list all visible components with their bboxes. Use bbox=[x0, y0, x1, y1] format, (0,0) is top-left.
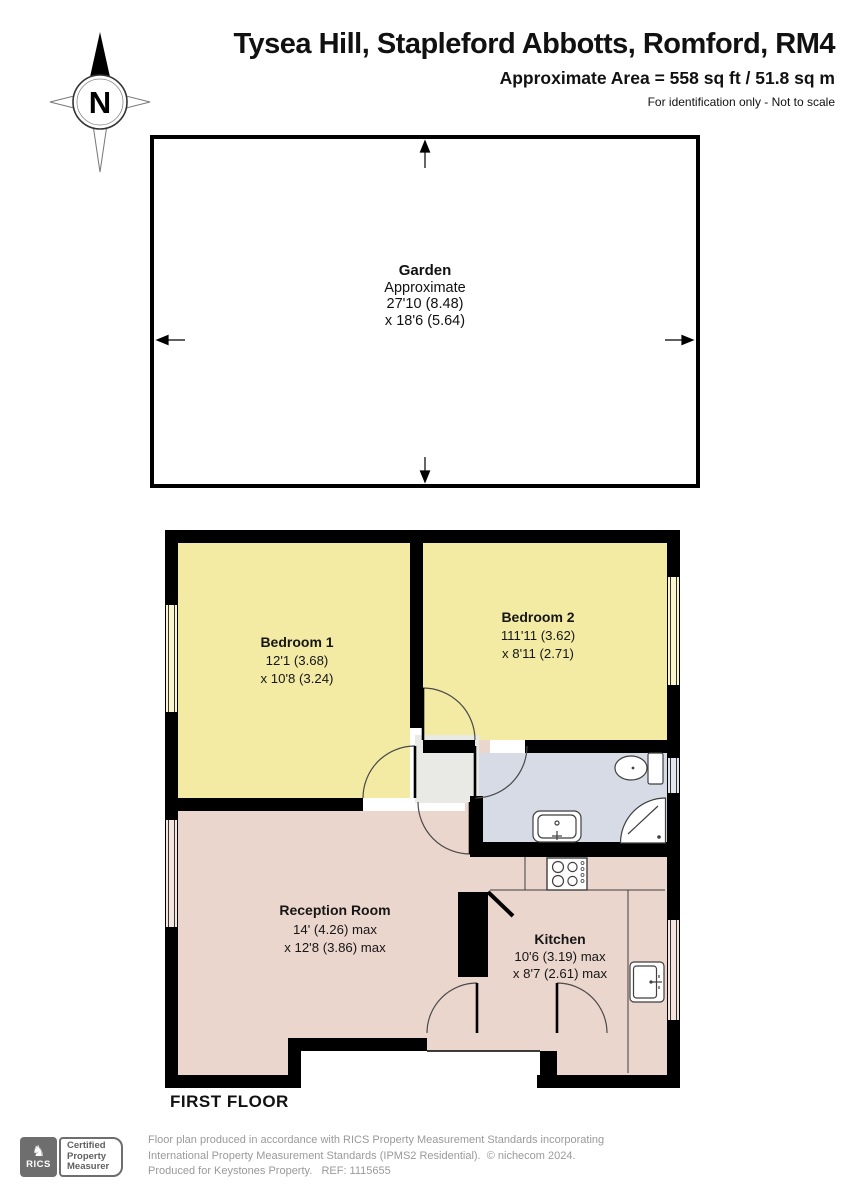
wall-bottom-step bbox=[288, 1038, 301, 1088]
kitchen-dim1: 10'6 (3.19) max bbox=[514, 949, 606, 964]
certified-property-measurer-badge: Certified Property Measurer bbox=[59, 1137, 123, 1177]
wall-reception-kitchen bbox=[458, 892, 488, 977]
garden-name: Garden bbox=[154, 263, 696, 280]
reception-dim1: 14' (4.26) max bbox=[293, 922, 377, 937]
garden-approx: Approximate bbox=[154, 280, 696, 297]
bedroom2-dim1: 111'11 (3.62) bbox=[501, 628, 575, 643]
footer-note-line3: Produced for Keystones Property. REF: 11… bbox=[148, 1164, 604, 1180]
wall-hall-bathroom bbox=[470, 796, 483, 842]
bedroom1-window bbox=[166, 605, 177, 712]
kitchen-window bbox=[668, 920, 679, 1020]
bathroom-sink bbox=[533, 811, 581, 842]
exterior-notch bbox=[301, 1051, 540, 1088]
compass-n-label: N bbox=[89, 85, 111, 120]
reception-dim2: x 12'8 (3.86) max bbox=[284, 940, 386, 955]
first-floor-plan: Bedroom 1 12'1 (3.68) x 10'8 (3.24) Bedr… bbox=[165, 530, 680, 1088]
compass-north-icon: N bbox=[42, 24, 158, 174]
garden-plot: Garden Approximate 27'10 (8.48) x 18'6 (… bbox=[150, 135, 700, 488]
rics-wordmark: RICS bbox=[26, 1159, 51, 1170]
wall-bed2-bathroom bbox=[525, 740, 667, 753]
garden-label: Garden Approximate 27'10 (8.48) x 18'6 (… bbox=[154, 263, 696, 329]
bedroom1-dim1: 12'1 (3.68) bbox=[266, 653, 329, 668]
bedroom2-dim2: x 8'11 (2.71) bbox=[502, 646, 574, 661]
floor-label: FIRST FLOOR bbox=[170, 1092, 289, 1112]
bedroom1-dim2: x 10'8 (3.24) bbox=[261, 671, 334, 686]
bathroom-window bbox=[668, 758, 679, 793]
garden-dim2: x 18'6 (5.64) bbox=[154, 313, 696, 330]
reception-name: Reception Room bbox=[279, 902, 390, 918]
wall-bed1-reception bbox=[178, 798, 363, 811]
floorplan-page: { "header": { "title": "Tysea Hill, Stap… bbox=[0, 0, 849, 1200]
wall-bottom-kitchen bbox=[537, 1075, 680, 1088]
approximate-area: Approximate Area = 558 sq ft / 51.8 sq m bbox=[500, 68, 835, 89]
bedroom2-window bbox=[668, 577, 679, 685]
page-title: Tysea Hill, Stapleford Abbotts, Romford,… bbox=[233, 28, 835, 61]
scale-disclaimer: For identification only - Not to scale bbox=[648, 95, 835, 109]
badge-line3: Measurer bbox=[67, 1162, 121, 1173]
kitchen-sink bbox=[630, 962, 664, 1002]
kitchen-dim2: x 8'7 (2.61) max bbox=[513, 966, 608, 981]
bedroom1-name: Bedroom 1 bbox=[260, 634, 333, 650]
rics-logo: ♞ RICS bbox=[20, 1137, 57, 1177]
wall-bathroom-kitchen bbox=[470, 842, 680, 857]
rics-lion-icon: ♞ bbox=[32, 1145, 45, 1159]
reception-window bbox=[166, 820, 177, 927]
footer-note-line1: Floor plan produced in accordance with R… bbox=[148, 1133, 604, 1149]
wall-top bbox=[165, 530, 680, 543]
wall-kitchen-corner bbox=[540, 1051, 557, 1088]
kitchen-name: Kitchen bbox=[534, 931, 585, 947]
hob bbox=[547, 858, 587, 890]
footer-disclaimer: Floor plan produced in accordance with R… bbox=[148, 1133, 604, 1180]
garden-dim1: 27'10 (8.48) bbox=[154, 296, 696, 313]
footer-note-line2: International Property Measurement Stand… bbox=[148, 1149, 604, 1165]
wall-bed2-hall bbox=[423, 740, 475, 753]
wall-bottom-reception bbox=[288, 1038, 427, 1051]
wall-bed1-bed2 bbox=[410, 543, 423, 728]
wall-bottom-left bbox=[165, 1075, 301, 1088]
bedroom2-name: Bedroom 2 bbox=[501, 609, 574, 625]
